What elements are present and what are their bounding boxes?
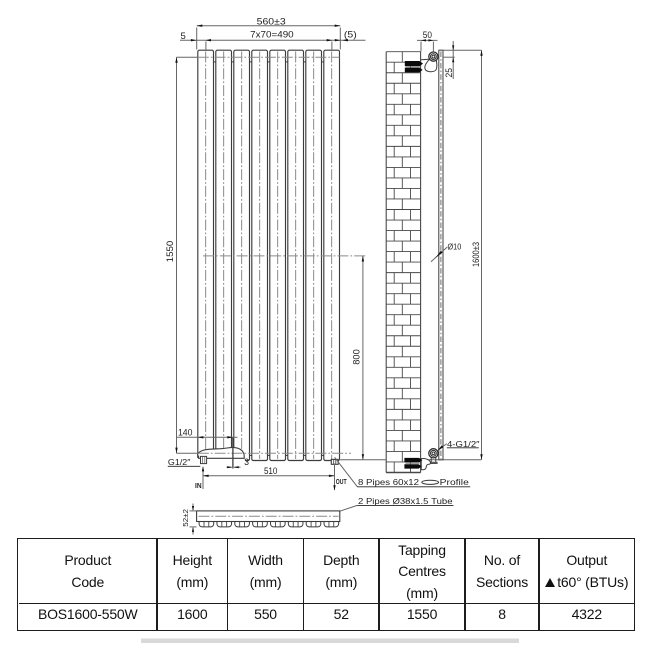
svg-text:510: 510 [264, 466, 278, 476]
svg-text:2 Pipes Ø38x1.5 Tube: 2 Pipes Ø38x1.5 Tube [358, 497, 453, 506]
svg-text:5: 5 [181, 31, 186, 42]
svg-text:560±3: 560±3 [257, 16, 286, 27]
svg-text:140: 140 [178, 427, 193, 437]
svg-text:800: 800 [352, 349, 362, 365]
svg-text:(5): (5) [344, 29, 357, 40]
svg-text:50: 50 [423, 30, 432, 40]
svg-text:25: 25 [444, 68, 454, 78]
svg-text:52±2: 52±2 [181, 509, 190, 527]
svg-text:1550: 1550 [165, 241, 175, 263]
svg-text:8 Pipes 60x12: 8 Pipes 60x12 [358, 478, 420, 487]
svg-text:Ø10: Ø10 [448, 241, 462, 251]
svg-text:7x70=490: 7x70=490 [250, 29, 294, 40]
svg-text:OUT: OUT [336, 479, 347, 486]
svg-text:3: 3 [244, 457, 249, 467]
svg-text:1600±3: 1600±3 [471, 242, 481, 267]
svg-text:Profile: Profile [440, 478, 470, 487]
svg-text:4-G1/2″: 4-G1/2″ [447, 439, 480, 449]
svg-text:IN: IN [195, 481, 202, 490]
